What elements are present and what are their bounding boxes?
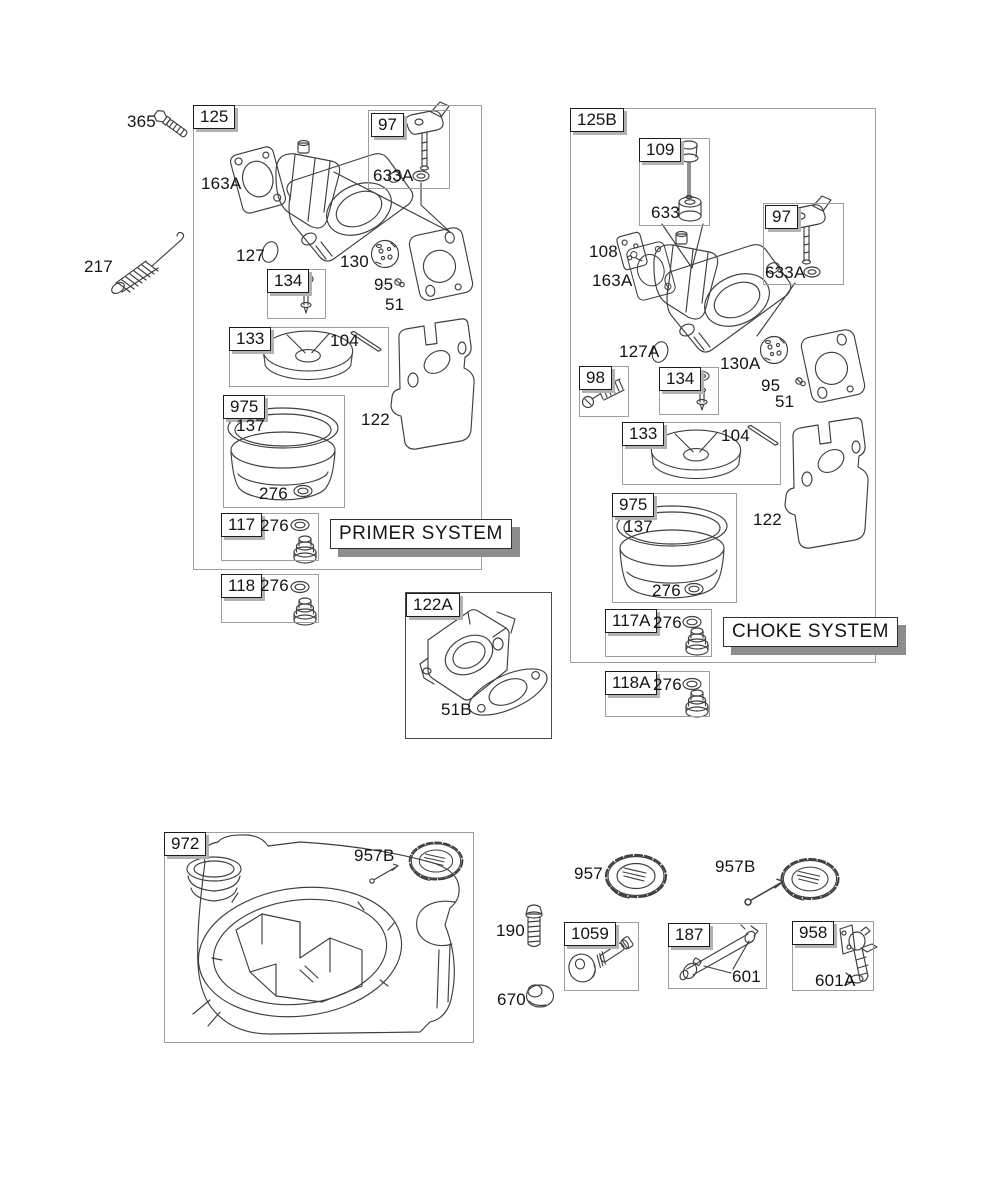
primer-system-banner: PRIMER SYSTEM — [330, 519, 512, 549]
callout-633: 633 — [651, 203, 680, 222]
callout-130: 130 — [340, 252, 369, 271]
part-tag-118: 118 — [221, 574, 262, 598]
part-tag-972: 972 — [164, 832, 206, 856]
part-tag-125b: 125B — [570, 108, 624, 132]
callout-957: 957 — [574, 864, 603, 883]
callout-190: 190 — [496, 921, 525, 940]
callout-957b-tank: 957B — [354, 846, 395, 865]
callout-601a: 601A — [815, 971, 856, 990]
callout-601: 601 — [732, 967, 761, 986]
fuel-cap-957-art — [606, 855, 666, 898]
callout-51b: 51B — [441, 700, 472, 719]
spring-217-art — [110, 232, 184, 295]
callout-957b-right: 957B — [715, 857, 756, 876]
callout-104-right: 104 — [721, 426, 750, 445]
callout-137-left: 137 — [236, 416, 265, 435]
callout-108: 108 — [589, 242, 618, 261]
part-tag-1059: 1059 — [564, 922, 616, 946]
part-tag-187: 187 — [668, 923, 710, 947]
callout-51-left: 51 — [385, 295, 404, 314]
part-tag-133-right: 133 — [622, 422, 664, 446]
bolt-365-art — [152, 108, 189, 139]
callout-122-right: 122 — [753, 510, 782, 529]
pointer-pin-957b-right — [745, 879, 783, 905]
callout-104-left: 104 — [330, 331, 359, 350]
bushing-670-art — [527, 985, 554, 1007]
callout-163a-right: 163A — [592, 271, 633, 290]
bolt-190-art — [526, 905, 542, 947]
part-tag-133-left: 133 — [229, 327, 271, 351]
part-tag-122a: 122A — [406, 593, 460, 617]
callout-670: 670 — [497, 990, 526, 1009]
part-tag-975-right: 975 — [612, 493, 654, 517]
callout-365: 365 — [127, 112, 156, 131]
part-tag-117a: 117A — [605, 609, 657, 633]
group-box-tank-972 — [164, 832, 474, 1043]
callout-276-118a: 276 — [653, 675, 682, 694]
callout-276-bowl-right: 276 — [652, 581, 681, 600]
part-tag-117: 117 — [221, 513, 262, 537]
callout-276-117a: 276 — [653, 613, 682, 632]
callout-163a-left: 163A — [201, 174, 242, 193]
callout-122-left: 122 — [361, 410, 390, 429]
callout-137-right: 137 — [624, 517, 653, 536]
part-tag-97-right: 97 — [765, 205, 798, 229]
callout-276-117: 276 — [260, 516, 289, 535]
callout-95-left: 95 — [374, 275, 393, 294]
callout-633a-right: 633A — [765, 263, 806, 282]
part-tag-134-left: 134 — [267, 269, 309, 293]
fuel-cap-957b-right-art — [782, 859, 839, 900]
callout-217: 217 — [84, 257, 113, 276]
callout-127a: 127A — [619, 342, 660, 361]
part-tag-118a: 118A — [605, 671, 657, 695]
part-tag-958: 958 — [792, 921, 834, 945]
callout-127: 127 — [236, 246, 265, 265]
choke-system-banner: CHOKE SYSTEM — [723, 617, 898, 647]
callout-51-right: 51 — [775, 392, 794, 411]
part-tag-97-left: 97 — [371, 113, 404, 137]
part-tag-125: 125 — [193, 105, 235, 129]
parts-diagram-page: 125 97 134 133 975 117 118 122A 125B 109… — [0, 0, 1000, 1200]
callout-276-bowl-left: 276 — [259, 484, 288, 503]
part-tag-98: 98 — [579, 366, 612, 390]
callout-276-118: 276 — [260, 576, 289, 595]
callout-633a-left: 633A — [373, 166, 414, 185]
callout-130a: 130A — [720, 354, 761, 373]
part-tag-134-right: 134 — [659, 367, 701, 391]
part-tag-109: 109 — [639, 138, 681, 162]
